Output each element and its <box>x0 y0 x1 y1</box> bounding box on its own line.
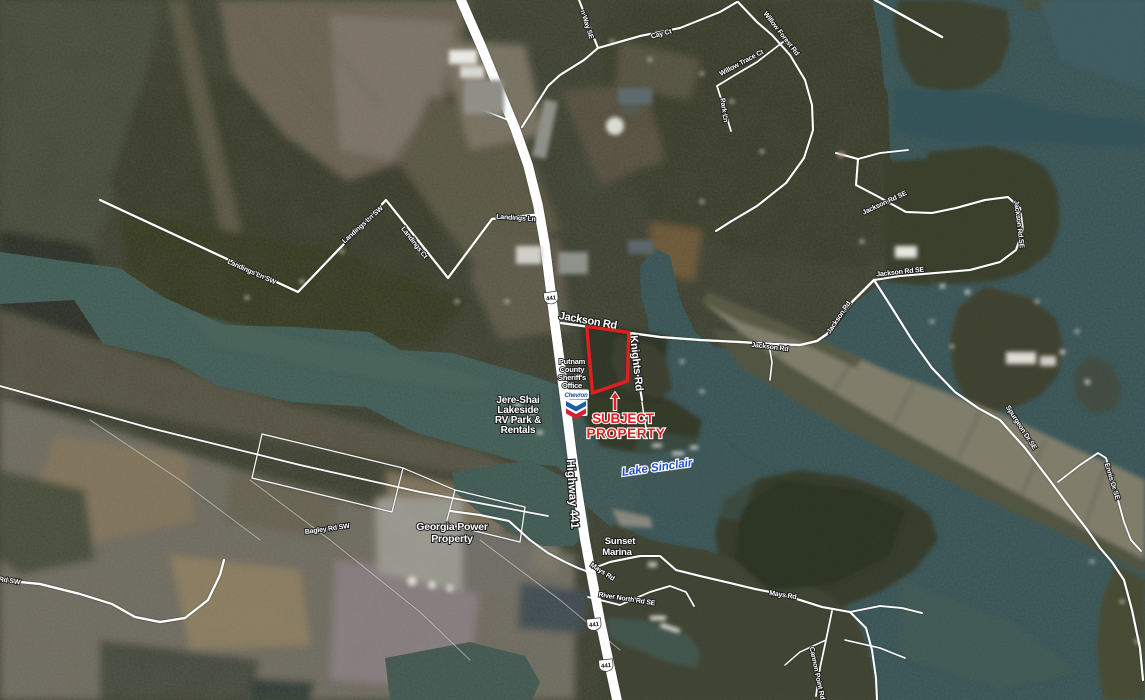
svg-text:Marina: Marina <box>602 547 632 558</box>
svg-text:Chevron: Chevron <box>565 392 589 399</box>
svg-text:SUBJECT: SUBJECT <box>592 411 655 426</box>
svg-text:Rentals: Rentals <box>501 425 536 436</box>
svg-text:Sunset: Sunset <box>605 536 637 547</box>
svg-text:PROPERTY: PROPERTY <box>586 426 665 441</box>
svg-text:Office: Office <box>562 381 582 390</box>
svg-text:Georgia Power: Georgia Power <box>416 521 488 533</box>
svg-text:Property: Property <box>431 533 473 545</box>
svg-text:441: 441 <box>601 663 612 670</box>
svg-text:441: 441 <box>589 622 600 629</box>
